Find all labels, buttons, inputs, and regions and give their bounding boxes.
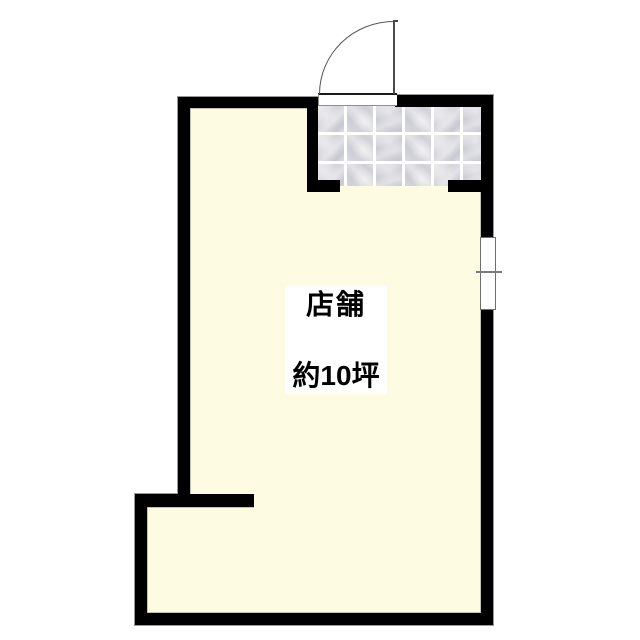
window-icon (480, 237, 496, 310)
entrance-tile (376, 106, 402, 132)
entrance-tile (347, 135, 373, 161)
entrance-tile (347, 164, 373, 186)
wall-lower-left (135, 494, 147, 625)
outline-right (493, 94, 494, 626)
wall-top-left (178, 97, 318, 108)
entrance-tile (376, 164, 402, 186)
wall-left (178, 97, 190, 494)
entrance-tile (318, 135, 344, 161)
innerline-extension-left (147, 507, 148, 613)
door-threshold (318, 93, 397, 106)
room-label-box: 店舗 約10坪 (285, 286, 387, 394)
wall-entrance-left-stub (307, 180, 340, 192)
door-leaf-cap (393, 20, 398, 22)
entrance-tile (463, 135, 483, 161)
wall-right (481, 95, 493, 625)
entrance-tile (347, 106, 373, 132)
room-name-label: 店舗 (306, 290, 366, 321)
entrance-tile (463, 106, 483, 132)
innerline-top (190, 108, 308, 109)
entrance-tile (376, 135, 402, 161)
entrance-tile (434, 135, 460, 161)
entrance-tile-area (318, 106, 483, 186)
entrance-tile (434, 106, 460, 132)
window-midline (476, 271, 502, 273)
wall-top-right (395, 95, 493, 107)
wall-entrance-left (307, 97, 318, 192)
entrance-tile (405, 164, 431, 186)
outline-bottom (134, 625, 494, 626)
entrance-tile (405, 135, 431, 161)
door-leaf-icon (393, 21, 395, 94)
door-swing-arc-icon (319, 21, 394, 94)
floor-lower-extension (141, 500, 487, 619)
room-area-label: 約10坪 (292, 361, 379, 392)
wall-bottom (135, 613, 493, 625)
innerline-step-bottom (147, 507, 254, 508)
innerline-left (190, 108, 191, 494)
entrance-tile (318, 106, 344, 132)
floorplan: 店舗 約10坪 (0, 0, 640, 640)
wall-entrance-right-stub (448, 180, 481, 192)
wall-step (135, 494, 254, 507)
entrance-tile (405, 106, 431, 132)
